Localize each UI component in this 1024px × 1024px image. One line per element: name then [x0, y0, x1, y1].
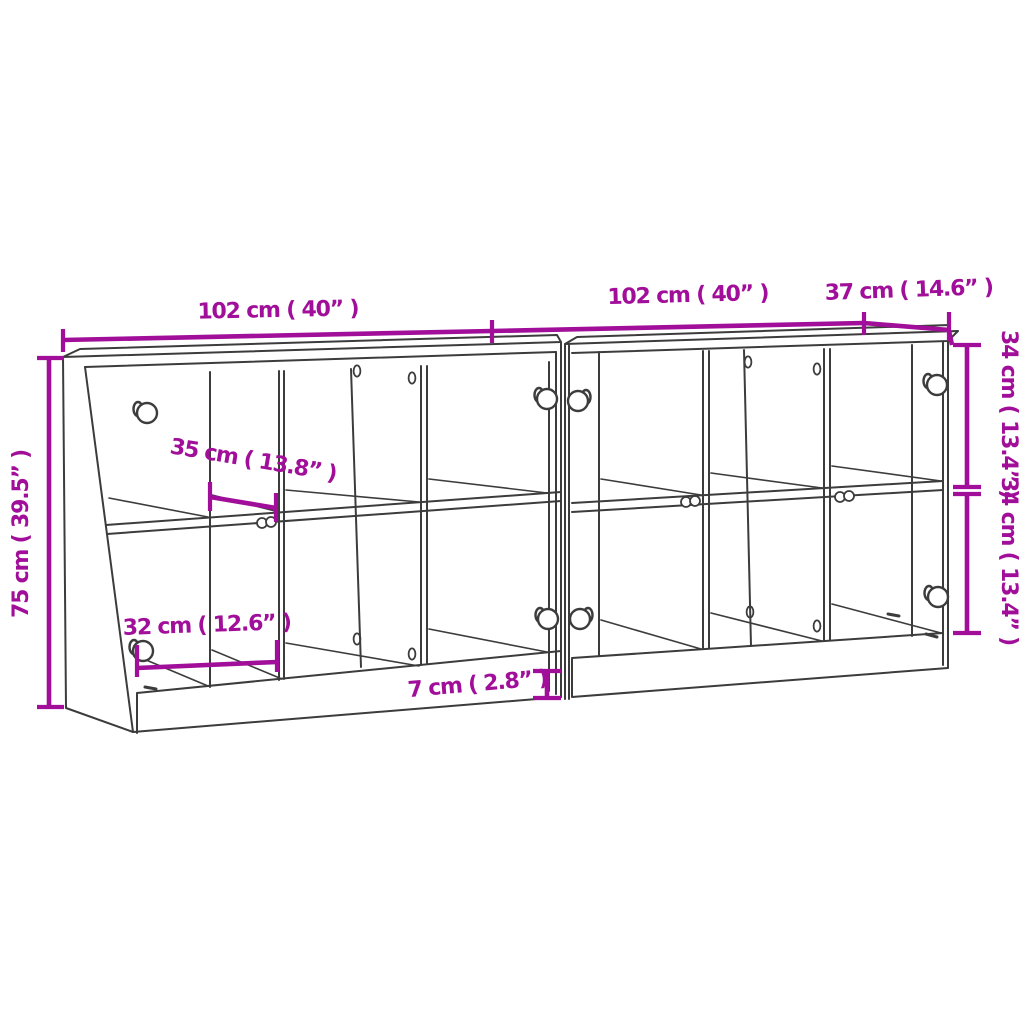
door-knob	[134, 402, 158, 423]
dimension-annotations: 102 cm ( 40” ) 102 cm ( 40” ) 37 cm ( 14…	[9, 275, 1021, 707]
diagram-canvas: 102 cm ( 40” ) 102 cm ( 40” ) 37 cm ( 14…	[0, 0, 1024, 1024]
right-unit-floor-edges	[601, 604, 941, 649]
door-knob	[568, 390, 591, 411]
dim-height: 75 cm ( 39.5” )	[9, 358, 64, 707]
dim-plinth-height-label: 7 cm ( 2.8” )	[407, 666, 549, 703]
pin-hole	[814, 620, 821, 631]
pin-hole	[409, 648, 416, 659]
dim-right-width-label: 102 cm ( 40” )	[607, 281, 769, 310]
dim-shelf-depth-label: 35 cm ( 13.8” )	[168, 434, 338, 486]
door-knob	[536, 608, 559, 629]
pin-hole	[814, 363, 821, 374]
door-knob	[925, 586, 949, 607]
door-knob	[924, 374, 948, 395]
foot-mark	[145, 687, 156, 689]
dim-shelf-depth-line	[210, 497, 276, 508]
dim-shelf-depth: 35 cm ( 13.8” )	[168, 434, 338, 522]
shelf-pin	[844, 491, 854, 501]
right-unit-shelf	[572, 481, 943, 512]
pin-hole	[409, 372, 416, 383]
dim-depth-label: 37 cm ( 14.6” )	[824, 275, 993, 306]
pin-hole	[354, 365, 361, 376]
dim-upper-compartment-label: 34 cm ( 13.4” )	[996, 330, 1021, 498]
shelf-pin	[690, 496, 700, 506]
pin-hole	[745, 356, 752, 367]
right-unit-plinth	[572, 633, 948, 697]
left-unit-side-panel	[63, 357, 133, 732]
door-knob	[570, 608, 593, 629]
dim-height-label: 75 cm ( 39.5” )	[9, 450, 34, 618]
cabinet-right-unit	[565, 325, 958, 699]
left-unit-shelf	[106, 492, 561, 534]
dim-plinth-height: 7 cm ( 2.8” )	[407, 666, 561, 703]
dim-lower-compartment: 34 cm ( 13.4” )	[953, 477, 1021, 645]
dim-compartment-width-line	[137, 662, 277, 668]
dim-compartment-width-label: 32 cm ( 12.6” )	[122, 610, 291, 641]
dim-left-width-label: 102 cm ( 40” )	[197, 296, 359, 324]
door-knob	[535, 388, 558, 409]
dimension-diagram: 102 cm ( 40” ) 102 cm ( 40” ) 37 cm ( 14…	[0, 0, 1024, 1024]
dim-right-width: 102 cm ( 40” )	[492, 281, 864, 335]
dim-lower-compartment-label: 34 cm ( 13.4” )	[996, 477, 1021, 645]
door-knob	[130, 640, 154, 661]
dim-upper-compartment: 34 cm ( 13.4” )	[953, 330, 1021, 498]
dim-compartment-width-ticks	[137, 640, 277, 677]
